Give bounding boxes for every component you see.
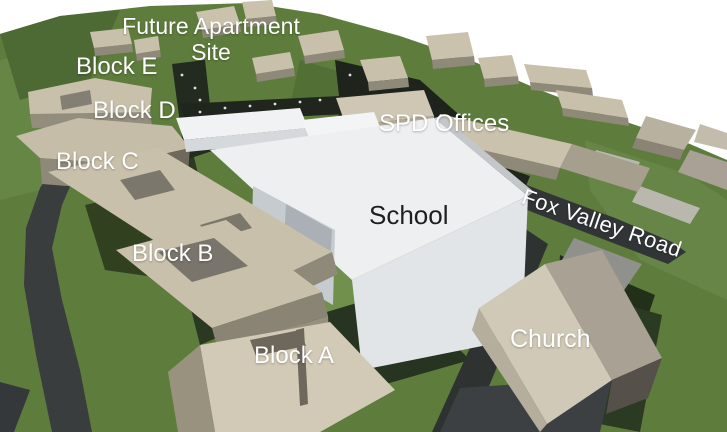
label-block-e: Block E <box>76 53 157 81</box>
label-block-c: Block C <box>56 148 139 176</box>
label-church: Church <box>510 325 591 354</box>
site-render-image: Future Apartment Site Block E Block D Bl… <box>0 0 727 432</box>
label-block-b: Block B <box>132 240 213 268</box>
label-school: School <box>369 201 449 231</box>
label-block-d: Block D <box>93 97 176 125</box>
label-spd-offices: SPD Offices <box>379 110 509 138</box>
label-block-a: Block A <box>254 342 334 370</box>
